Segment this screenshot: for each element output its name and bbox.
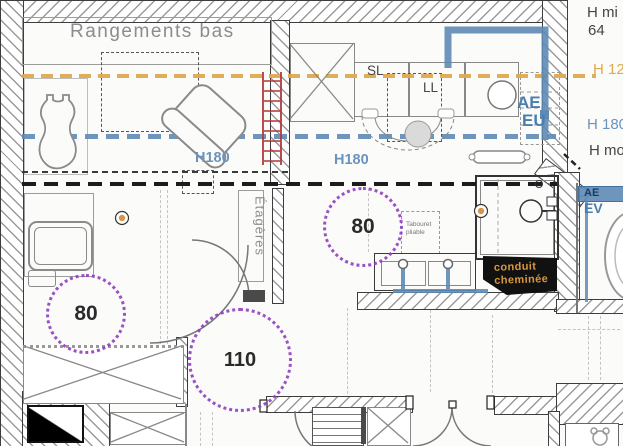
- projection-dash: [167, 190, 168, 344]
- note-h-180: H 180: [587, 117, 623, 134]
- projection-dash: [588, 316, 589, 380]
- folding-stool-dashed: Tabouret pliable: [401, 211, 440, 254]
- small-room-bottom-right: [565, 423, 619, 446]
- bedroom-dashed-furniture: [101, 52, 199, 132]
- cross-box-bottom-left: [110, 412, 187, 445]
- toilet-room-left-wall-line: [576, 183, 578, 313]
- wall-left: [0, 0, 24, 446]
- radiator: [469, 151, 530, 163]
- kitchen-counter-right: [465, 62, 519, 117]
- clearance-circle-center: 80: [323, 187, 403, 267]
- demolition-dashed-line: [22, 182, 557, 186]
- vanity-basin-right: [428, 261, 471, 286]
- dryer-label: SL: [367, 64, 384, 79]
- folding-stool-label: Tabouret pliable: [402, 212, 439, 237]
- drain-label-toilet: EV: [584, 201, 603, 216]
- chimney-flue-box: conduit cheminée: [483, 256, 557, 295]
- note-h-min: H mi: [587, 5, 618, 22]
- projection-dash-h: [558, 329, 620, 330]
- kitchen-cabinet-cross: [290, 43, 355, 122]
- hall-wall-line: [185, 404, 187, 446]
- ladder-symbol: [262, 72, 282, 165]
- wall-strip-bottom-right: [548, 411, 560, 446]
- note-h-min-value: 64: [588, 23, 605, 40]
- spot-marker-bath: [116, 212, 129, 225]
- projection-dash: [430, 310, 431, 392]
- note-h-120: H 120: [593, 62, 623, 79]
- floor-plan: Tabouret pliable conduit cheminée AE: [0, 0, 623, 446]
- projection-dash: [492, 315, 493, 393]
- bathtub-inner: [34, 227, 87, 265]
- level-line-h180: [22, 134, 556, 139]
- chimney-flue-label: conduit cheminée: [482, 255, 557, 289]
- wastewater-label-kitchen: EU: [522, 112, 546, 131]
- projection-dash: [600, 316, 601, 380]
- closet-cross-left: [23, 345, 184, 404]
- shelves-label: Étagères: [252, 196, 266, 292]
- level-line-h120: [22, 74, 596, 78]
- height-label-kitchen: H180: [334, 153, 369, 169]
- stairs: [312, 407, 364, 446]
- clearance-circle-bath-value: 80: [74, 302, 97, 326]
- stairs-divider: [361, 407, 366, 444]
- projection-dash: [347, 308, 348, 394]
- folding-stool-label-line2: pliable: [406, 229, 425, 236]
- shower-stall-inner: [480, 180, 554, 255]
- instrument-zone: [24, 78, 88, 175]
- plan-corner-triangle: [27, 405, 84, 443]
- bathtub: [28, 221, 93, 271]
- height-label-bedroom: H180: [195, 151, 230, 167]
- shower-stall: [475, 175, 559, 260]
- water-inlet-label-kitchen: AE: [517, 94, 541, 113]
- vanity-unit: [374, 253, 476, 291]
- projection-dash: [160, 190, 161, 344]
- washer-label: LL: [423, 81, 438, 96]
- folding-stool-label-line1: Tabouret: [406, 221, 431, 228]
- ceiling-break-line: [22, 171, 288, 173]
- chimney-flue-line2: cheminée: [494, 273, 548, 287]
- water-supply-bar-label: AE: [584, 187, 599, 199]
- projection-dash: [200, 412, 201, 446]
- chimney-flue-line1: conduit: [494, 260, 537, 273]
- low-storage-label: Rangements bas: [70, 22, 235, 43]
- clearance-circle-bath: 80: [46, 274, 126, 354]
- cross-box-bottom-center: [367, 407, 411, 446]
- wall-block-bottom-right: [556, 383, 623, 425]
- clearance-circle-center-value: 80: [351, 215, 374, 239]
- toilet: [605, 212, 623, 300]
- wall-toilet-bottom: [556, 299, 623, 314]
- wall-below-vanity: [357, 292, 559, 310]
- clearance-circle-hall-value: 110: [224, 349, 256, 372]
- clearance-circle-hall: 110: [188, 308, 292, 412]
- wall-shelf-strip: [272, 188, 284, 304]
- note-h-mo: H mo: [589, 143, 623, 160]
- vanity-basin-left: [381, 261, 426, 286]
- projection-dash: [212, 412, 213, 446]
- bathtub-step: [28, 270, 56, 287]
